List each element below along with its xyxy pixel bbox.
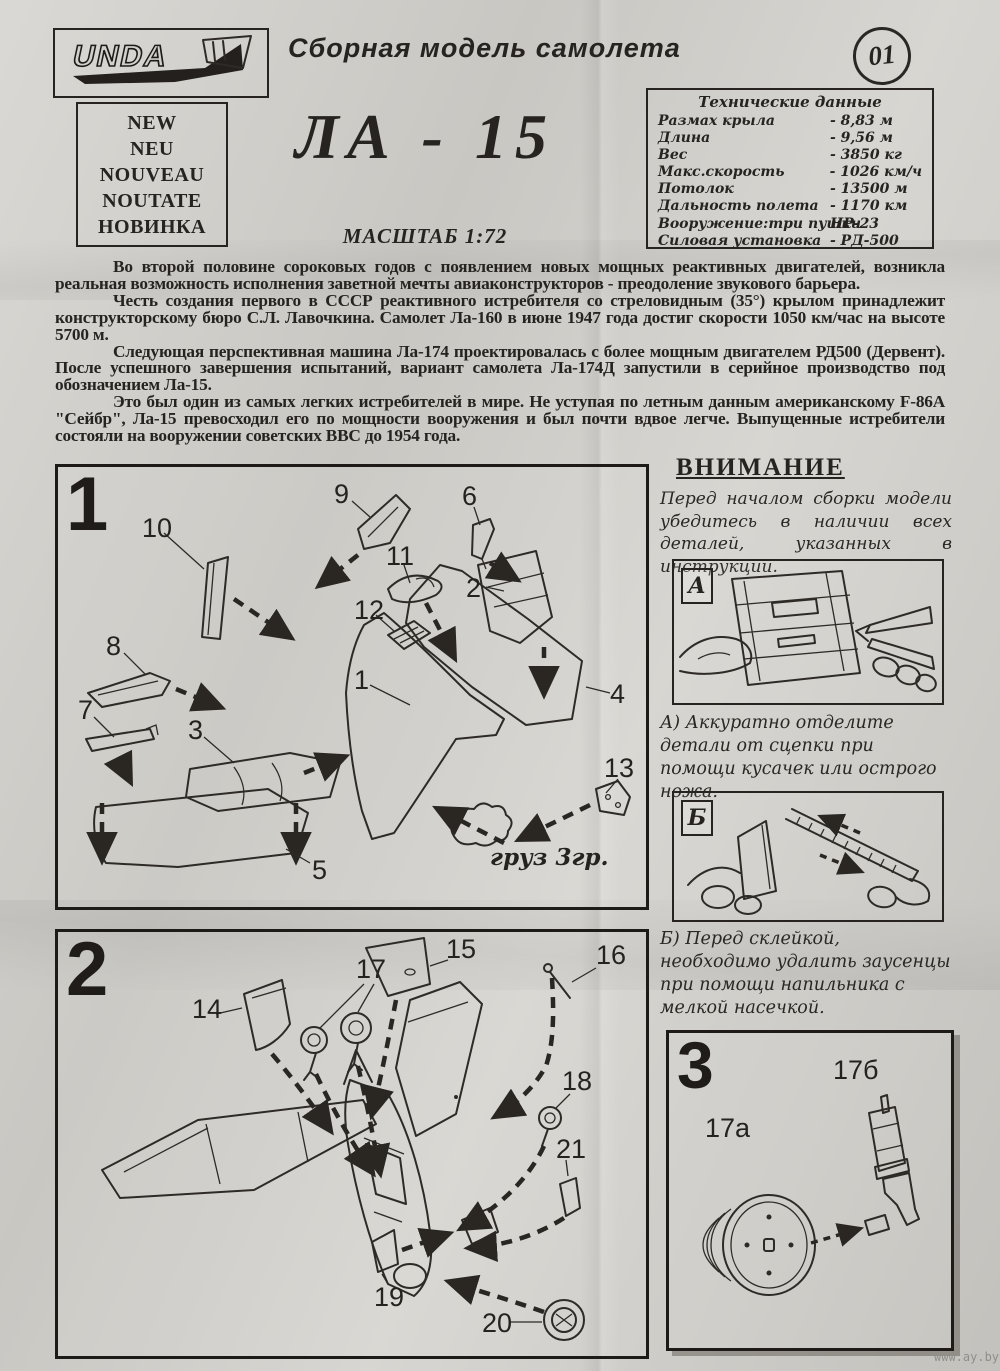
new-line: NEU [78,136,226,162]
new-line: НОВИНКА [78,214,226,240]
assembly-step-1: 1 [55,464,649,910]
figure-a-label: А [681,568,713,604]
assembly-arrow [811,1229,859,1243]
airframe [102,982,498,1296]
part-label: 13 [604,753,634,783]
tech-spec-row: Силовая установка - РД-500 [658,233,922,250]
part-label: 20 [482,1308,512,1338]
figure-b-label: Б [681,800,713,836]
file-deburring-illustration [674,793,938,916]
tech-spec-row: Длина - 9,56 м [658,130,922,147]
tech-spec-row: Потолок - 13500 м [658,181,922,198]
part-canopy-11 [388,576,442,603]
model-scale: МАСШТАБ 1:72 [280,224,570,249]
history-paragraph: Следующая перспективная машина Ла-174 пр… [55,344,945,395]
part-strip-7 [86,725,158,751]
part-label: 16 [596,940,626,970]
part-wheel-17a [703,1195,815,1295]
part-strut-17b [865,1095,919,1235]
tech-spec-row: Макс.скорость - 1026 км/ч [658,164,922,181]
step-number: 3 [677,1027,714,1103]
part-label: 6 [462,481,477,511]
brand-logo-box: UNDA [53,28,269,98]
part-label: 9 [334,479,349,509]
part-label: 17 [356,954,386,984]
part-wing-lower-5 [94,789,308,867]
tech-specs-table: Технические данные Размах крыла - 8,83 м… [646,88,934,249]
weight-note: груз 3гр. [490,844,609,871]
attention-title: ВНИМАНИЕ [676,454,845,482]
leader-lines [216,960,596,1322]
part-bracket-13 [596,781,630,815]
watermark: www.ay.by [934,1350,999,1364]
part-label: 8 [106,631,121,661]
part-antenna-14 [244,980,290,1050]
step2-exploded-diagram: 14 15 16 17 18 21 19 20 [58,932,640,1350]
part-label: 15 [446,934,476,964]
part-spinner-20 [544,1300,584,1340]
instruction-sheet: UNDA Сборная модель самолета 01 NEW NEU … [0,0,1000,1371]
history-paragraph: Во второй половине сороковых годов с поя… [55,259,945,293]
part-wing-upper-3 [186,753,340,811]
step-number: 2 [66,926,108,1013]
figure-a-cutting: А [672,559,944,705]
page-title: Сборная модель самолета [288,33,848,64]
step1-exploded-diagram: 10 9 6 11 2 12 8 4 1 7 3 13 5 груз 3гр. [58,467,640,901]
tech-spec-row: Вооружение:три пушки НР-23 [658,216,922,233]
part-pin-16 [544,964,570,998]
weight-blob [451,803,511,845]
part-label: 1 [354,665,369,695]
part-label: 10 [142,513,172,543]
part-fin-10 [202,557,228,639]
part-label: 2 [466,573,481,603]
sheet-number-badge: 01 [850,24,914,88]
part-label: 7 [78,695,93,725]
part-stabilizer-8 [88,673,170,707]
part-label: 21 [556,1134,586,1164]
part-label: 12 [354,595,384,625]
part-label: 14 [192,994,222,1024]
part-flap-19 [372,1230,398,1272]
unda-logo-icon: UNDA [55,30,263,92]
tech-specs-title: Технические данные [658,93,922,111]
new-line: NOUVEAU [78,162,226,188]
part-label: 17б [833,1055,879,1085]
sprue-cutting-illustration [674,561,938,699]
part-label: 3 [188,715,203,745]
assembly-step-2: 2 [55,929,649,1359]
part-label: 18 [562,1066,592,1096]
brand-text: UNDA [70,40,172,73]
history-paragraph: Это был один из самых легких истребителе… [55,394,945,445]
instruction-b-text: Б) Перед склейкой, необходимо удалить за… [660,928,954,1020]
history-paragraph: Честь создания первого в СССР реактивног… [55,293,945,344]
new-line: NOUTATE [78,188,226,214]
part-door-21 [560,1178,580,1216]
tech-spec-row: Размах крыла - 8,83 м [658,113,922,130]
step-number: 1 [66,461,108,548]
model-title: ЛА - 15 [255,100,595,174]
part-label: 19 [374,1282,404,1312]
tech-spec-row: Вес - 3850 кг [658,147,922,164]
figure-b-filing: Б [672,791,944,922]
history-text: Во второй половине сороковых годов с поя… [55,259,945,445]
assembly-step-3: 3 1 [666,1030,954,1351]
new-languages-box: NEW NEU NOUVEAU NOUTATE НОВИНКА [76,102,228,247]
tech-spec-row: Дальность полета - 1170 км [658,198,922,215]
new-line: NEW [78,110,226,136]
part-label: 5 [312,855,327,885]
part-label: 11 [386,541,414,571]
part-label: 4 [610,679,625,709]
part-label: 17а [705,1113,751,1143]
